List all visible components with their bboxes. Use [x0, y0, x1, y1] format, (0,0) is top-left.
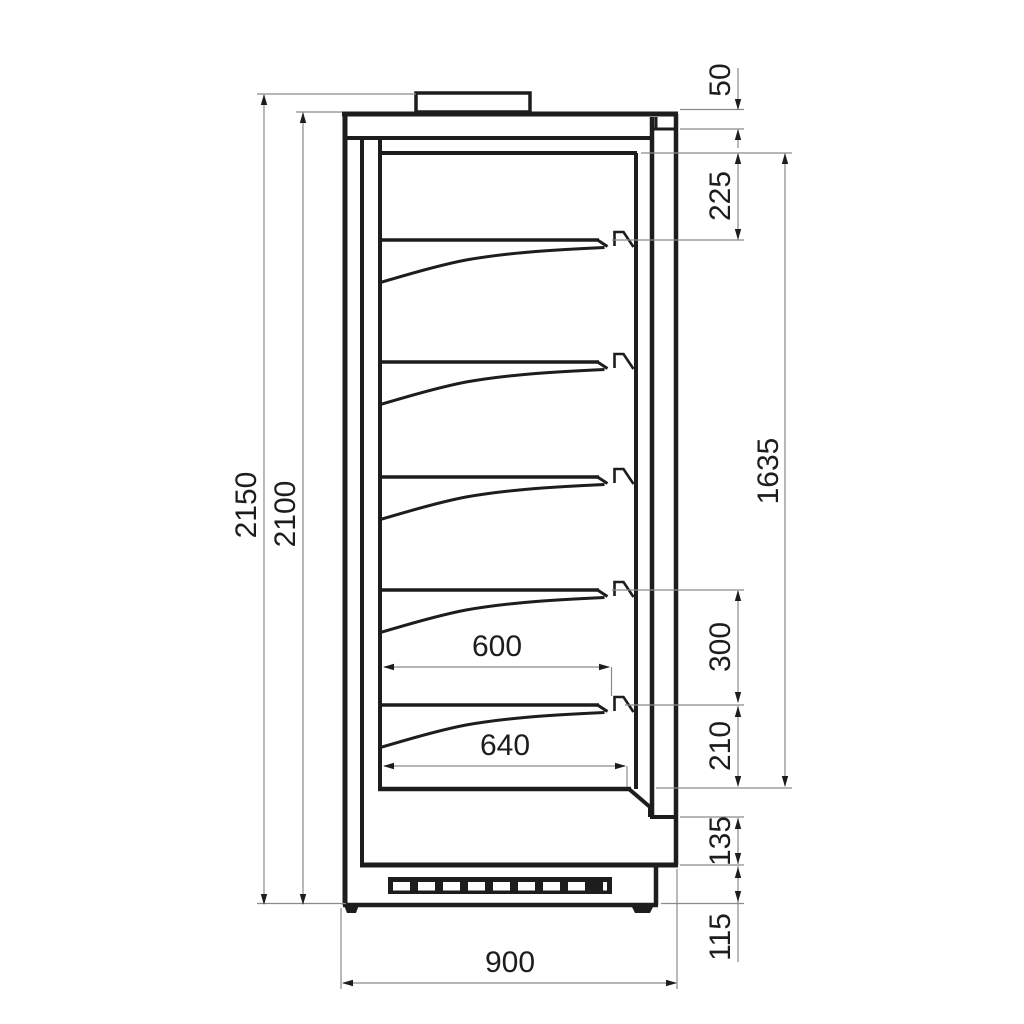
dim-label-shelf-zone: 1635: [752, 438, 785, 505]
dim-label-shelf-depth: 600: [472, 630, 522, 663]
dim-label-first-shelf: 225: [704, 171, 737, 221]
arrow-left: [342, 980, 353, 986]
arrow-up: [261, 94, 267, 105]
dim-label-deck-gap: 210: [704, 721, 737, 771]
arrow-up: [300, 112, 306, 123]
price-tag-hook: [615, 354, 634, 369]
arrow-up: [735, 706, 741, 717]
top-vent-block: [416, 93, 530, 112]
shelf-underside: [381, 370, 605, 405]
shelf: [380, 582, 634, 633]
arrow-down: [735, 229, 741, 240]
grille-slot: [493, 882, 510, 891]
arrow-up: [735, 129, 741, 140]
grille-slot: [418, 882, 435, 891]
shelves: [380, 232, 634, 748]
dim-label-total-depth: 900: [485, 946, 535, 979]
grille-slot: [468, 882, 485, 891]
grille-slot: [543, 882, 560, 891]
deck-front-angle: [629, 789, 650, 807]
grille-slot: [393, 882, 410, 891]
dimension-labels: 2150 2100 50 225 1635 300 210 135 115 60…: [230, 63, 785, 979]
dim-label-kick: 135: [704, 816, 737, 866]
shelf-tip: [598, 590, 608, 597]
grille-slot: [518, 882, 535, 891]
arrow-up: [735, 590, 741, 601]
shelf-underside: [381, 248, 605, 283]
shelf-underside: [381, 598, 605, 633]
grille-slot: [568, 882, 585, 891]
grille-slot: [443, 882, 460, 891]
arrow-right: [666, 980, 677, 986]
arrow-left: [383, 664, 394, 670]
price-tag-hook: [615, 469, 634, 484]
shelf-underside: [381, 485, 605, 520]
arrow-down: [735, 692, 741, 703]
arrow-up: [735, 867, 741, 878]
shelf: [380, 232, 634, 283]
dim-label-deck-depth: 640: [480, 729, 530, 762]
dim-label-base: 115: [704, 913, 737, 961]
arrow-up: [782, 153, 788, 164]
ventilation-grille: [388, 877, 612, 894]
arrow-right: [599, 664, 610, 670]
foot-left: [344, 905, 359, 913]
arrow-left: [383, 763, 394, 769]
technical-drawing: 2150 2100 50 225 1635 300 210 135 115 60…: [0, 0, 1024, 1024]
grille-slot-end: [603, 882, 607, 891]
shelf: [380, 469, 634, 520]
arrow-down: [782, 776, 788, 787]
shelf-tip: [598, 705, 608, 712]
dim-label-body-height: 2100: [269, 481, 302, 548]
drawing-canvas: 2150 2100 50 225 1635 300 210 135 115 60…: [0, 0, 1024, 1024]
arrow-down: [735, 776, 741, 787]
dim-label-total-height: 2150: [230, 472, 263, 539]
arrow-up: [735, 153, 741, 164]
dim-label-top: 50: [704, 63, 737, 96]
shelf: [380, 354, 634, 405]
dim-label-shelf-pitch: 300: [704, 622, 737, 672]
shelf-tip: [598, 477, 608, 484]
arrow-right: [615, 763, 626, 769]
shelf-tip: [598, 240, 608, 247]
shelf-tip: [598, 362, 608, 369]
cabinet-body: [342, 93, 678, 913]
arrow-down: [735, 99, 741, 110]
arrow-down: [735, 891, 741, 902]
foot-right: [631, 905, 654, 913]
